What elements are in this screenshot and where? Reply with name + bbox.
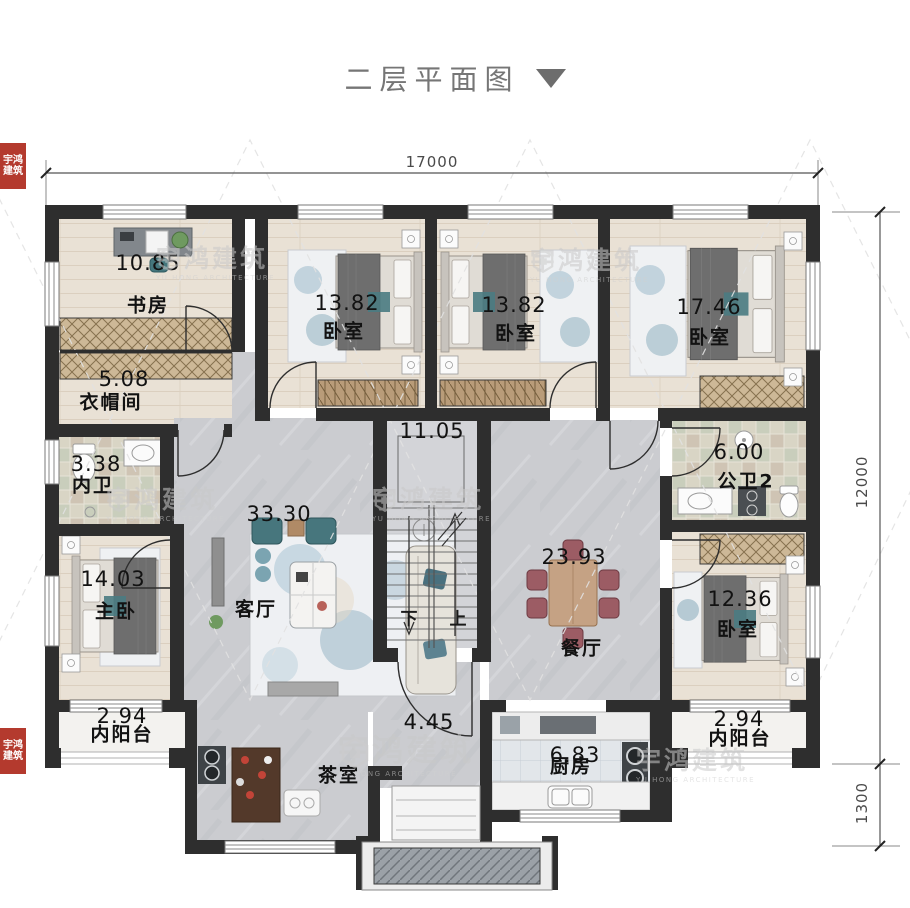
room-label-bedroom2-name: 卧室 (495, 319, 537, 346)
dim-right-height: 12000 (853, 456, 871, 509)
stairs-down-label: 下 (401, 605, 418, 630)
floorplan-page: 二层平面图 17000 12000 1300 10.85 书房 13.82 卧室… (0, 0, 910, 908)
stairs-up-label: 上 (450, 605, 467, 630)
page-title-row: 二层平面图 (0, 58, 910, 98)
room-label-bedroom4-name: 卧室 (717, 615, 759, 642)
room-label-cloakroom-name: 衣帽间 (79, 388, 142, 415)
room-label-study-area: 10.85 (115, 251, 180, 275)
red-logo-badge-text: 宇鸿建筑 (2, 740, 24, 763)
room-label-bedroom4-area: 12.36 (707, 587, 772, 611)
room-label-bedroom3-area: 17.46 (676, 295, 741, 319)
room-label-publicbath-area: 6.00 (714, 440, 765, 464)
triangle-down-icon (536, 69, 566, 88)
room-label-living-name: 客厅 (235, 595, 277, 622)
red-logo-badge: 宇鸿建筑 (0, 728, 26, 774)
dim-right-lower: 1300 (853, 782, 871, 824)
room-label-stairwell-area: 11.05 (399, 419, 464, 443)
red-logo-badge-text: 宇鸿建筑 (2, 155, 24, 178)
room-label-living-area: 33.30 (246, 502, 311, 526)
room-label-tea-name: 茶室 (318, 761, 360, 788)
room-label-balcony-left-name: 内阳台 (90, 720, 153, 747)
room-label-ensuite-name: 内卫 (72, 471, 114, 498)
dim-top-width: 17000 (406, 153, 459, 171)
room-label-tea-area: 4.45 (404, 710, 455, 734)
room-label-master-name: 主卧 (95, 597, 137, 624)
room-label-dining-area: 23.93 (541, 545, 606, 569)
room-label-balcony-right-name: 内阳台 (708, 724, 771, 751)
room-label-study-name: 书房 (127, 291, 169, 318)
room-label-kitchen-name: 厨房 (550, 752, 592, 779)
room-label-bedroom1-area: 13.82 (314, 291, 379, 315)
room-label-bedroom3-name: 卧室 (689, 323, 731, 350)
room-label-publicbath-name: 公卫2 (717, 467, 774, 494)
floorplan-drawing (0, 0, 910, 908)
room-label-dining-name: 餐厅 (561, 634, 603, 661)
room-label-master-area: 14.03 (80, 567, 145, 591)
room-label-bedroom1-name: 卧室 (323, 317, 365, 344)
page-title: 二层平面图 (344, 58, 519, 98)
red-logo-badge: 宇鸿建筑 (0, 143, 26, 189)
room-label-bedroom2-area: 13.82 (481, 293, 546, 317)
